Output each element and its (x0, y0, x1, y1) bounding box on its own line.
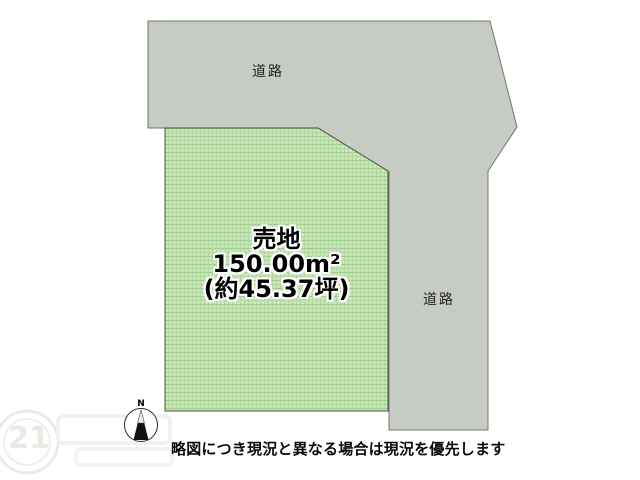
plot-area-m2: 150.00m² (165, 252, 388, 277)
compass-north-label: N (134, 399, 148, 409)
road-label-top: 道路 (240, 61, 296, 81)
road-label-right: 道路 (411, 289, 467, 309)
plot-caption: 売地 150.00m² (約45.37坪) (165, 227, 388, 302)
plot-map-canvas: 21 道路 道路 売地 150.00m² (約45.37坪) N 略図につき現況… (0, 0, 640, 480)
compass-icon (125, 409, 158, 442)
disclaimer-note: 略図につき現況と異なる場合は現況を優先します (171, 440, 505, 458)
plot-area-tsubo: (約45.37坪) (165, 277, 388, 302)
plot-title: 売地 (165, 227, 388, 252)
watermark-text: 21 (7, 421, 51, 456)
